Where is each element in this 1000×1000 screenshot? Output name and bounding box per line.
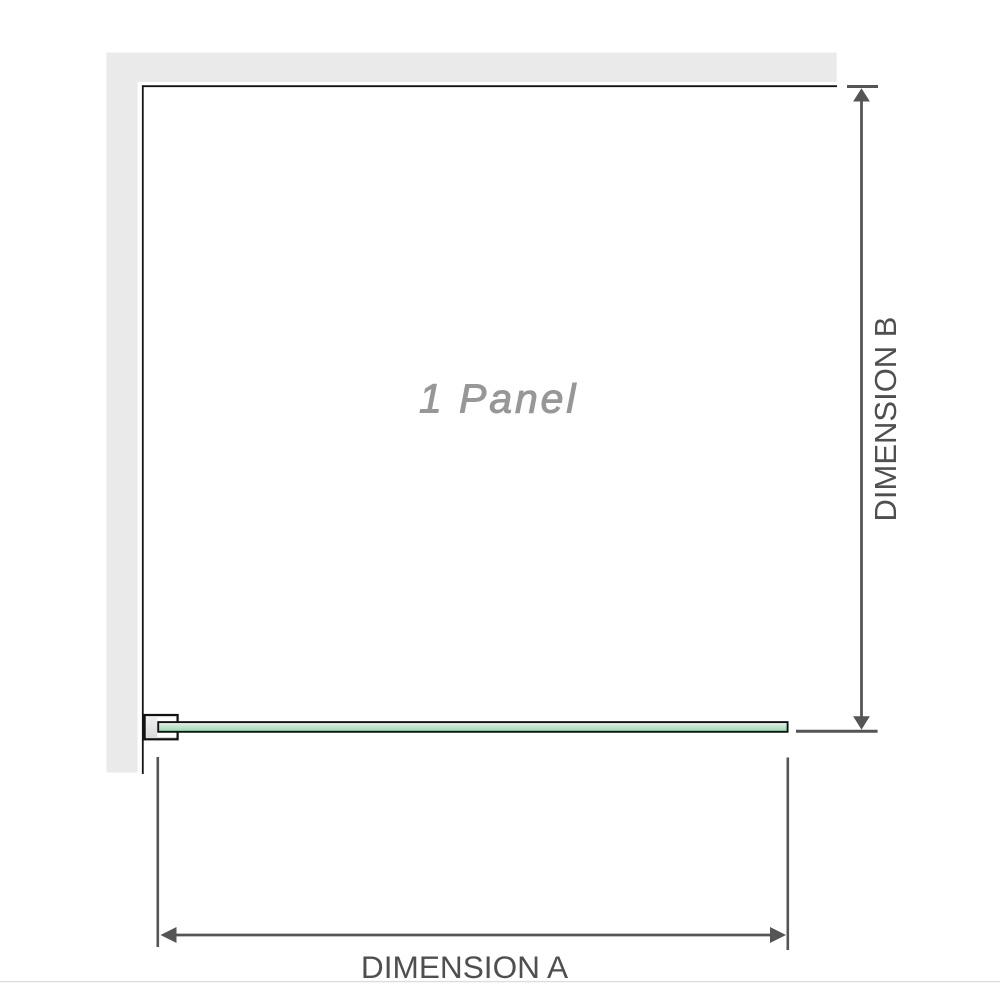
svg-text:DIMENSION A: DIMENSION A: [361, 949, 569, 985]
svg-text:1 Panel: 1 Panel: [419, 375, 578, 421]
svg-text:DIMENSION B: DIMENSION B: [868, 317, 903, 522]
